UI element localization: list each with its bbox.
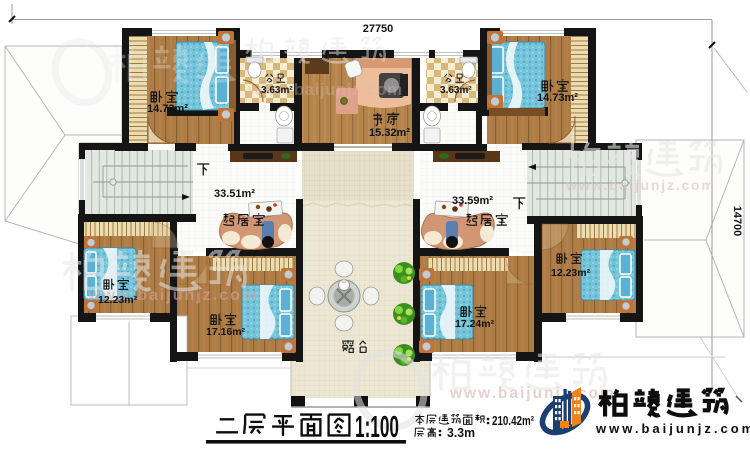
svg-text:210.42m²: 210.42m² xyxy=(492,414,534,428)
svg-text:3.63m²: 3.63m² xyxy=(261,85,293,96)
svg-text:1:100: 1:100 xyxy=(355,409,399,444)
svg-text:15.32m²: 15.32m² xyxy=(369,127,410,139)
svg-text:27750: 27750 xyxy=(363,23,394,35)
svg-text:3.63m²: 3.63m² xyxy=(440,85,472,96)
svg-text:12.23m²: 12.23m² xyxy=(98,294,138,306)
svg-text:17.16m²: 17.16m² xyxy=(206,326,246,338)
svg-text:www.baijunjz.com: www.baijunjz.com xyxy=(565,177,716,193)
svg-text:14.73m²: 14.73m² xyxy=(537,92,578,104)
svg-text:14700: 14700 xyxy=(731,206,743,237)
svg-text:www.baijunjz.com: www.baijunjz.com xyxy=(449,385,616,402)
svg-text:14.73m²: 14.73m² xyxy=(147,103,188,115)
svg-text:33.51m²: 33.51m² xyxy=(214,188,255,200)
svg-text:12.23m²: 12.23m² xyxy=(551,267,591,279)
svg-text:17.24m²: 17.24m² xyxy=(455,318,495,330)
svg-text:3.3m: 3.3m xyxy=(447,426,475,440)
svg-text:33.59m²: 33.59m² xyxy=(452,195,493,207)
svg-text:www.baijunjz.com: www.baijunjz.com xyxy=(595,421,750,436)
